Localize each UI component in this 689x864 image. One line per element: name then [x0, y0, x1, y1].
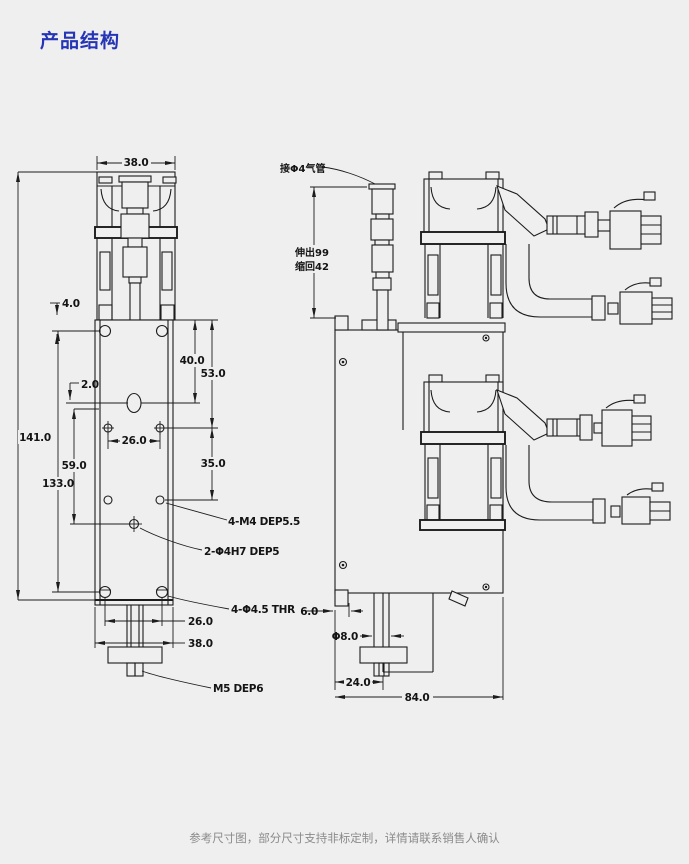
note-2-phi4h7: 2-Φ4H7 DEP5	[204, 546, 279, 558]
connector-c	[497, 390, 651, 446]
dim-53: 53.0	[201, 368, 226, 380]
note-4-phi45-thr: 4-Φ4.5 THR	[231, 604, 295, 616]
technical-drawing-canvas: 38.0 141.0 133.0 4.0	[0, 0, 689, 864]
front-view-actuator	[95, 172, 177, 320]
front-view-shaft	[108, 605, 162, 676]
dim-phi8: Φ8.0	[332, 631, 358, 643]
front-view: 38.0 141.0 133.0 4.0	[18, 156, 300, 695]
product-structure-page: 产品结构	[0, 0, 689, 864]
note-air-tube: 接Φ4气管	[280, 162, 325, 175]
dim-133: 133.0	[42, 478, 74, 490]
dim-24: 24.0	[346, 677, 371, 689]
dim-26-mid: 26.0	[122, 435, 147, 447]
dim-84: 84.0	[405, 692, 430, 704]
dim-38-top: 38.0	[124, 157, 149, 169]
connector-d	[506, 445, 670, 524]
note-retract-42: 缩回42	[295, 260, 329, 273]
note-4-m4: 4-M4 DEP5.5	[228, 516, 300, 528]
connector-a	[497, 186, 661, 249]
dim-26-bottom: 26.0	[188, 616, 213, 628]
dim-2-offset: 2.0	[81, 379, 99, 391]
dim-40: 40.0	[180, 355, 205, 367]
side-view-body	[335, 316, 503, 606]
dim-38-bottom: 38.0	[188, 638, 213, 650]
dim-4-offset: 4.0	[62, 298, 80, 310]
motor-module-1	[398, 172, 505, 332]
dim-59: 59.0	[62, 460, 87, 472]
front-view-mounting-plate	[95, 320, 173, 605]
connector-b	[506, 244, 672, 324]
side-view: 接Φ4气管 伸出99 缩回42 6.0 Φ8.0	[280, 162, 672, 704]
dim-141: 141.0	[19, 432, 51, 444]
note-m5-dep6: M5 DEP6	[213, 683, 263, 695]
side-view-air-fitting	[369, 184, 395, 330]
page-footer: 参考尺寸图，部分尺寸支持非标定制，详情请联系销售人确认	[0, 830, 689, 846]
dim-35: 35.0	[201, 458, 226, 470]
dim-6: 6.0	[300, 606, 318, 618]
note-extend-99: 伸出99	[294, 246, 329, 259]
side-view-nozzle	[360, 593, 433, 676]
